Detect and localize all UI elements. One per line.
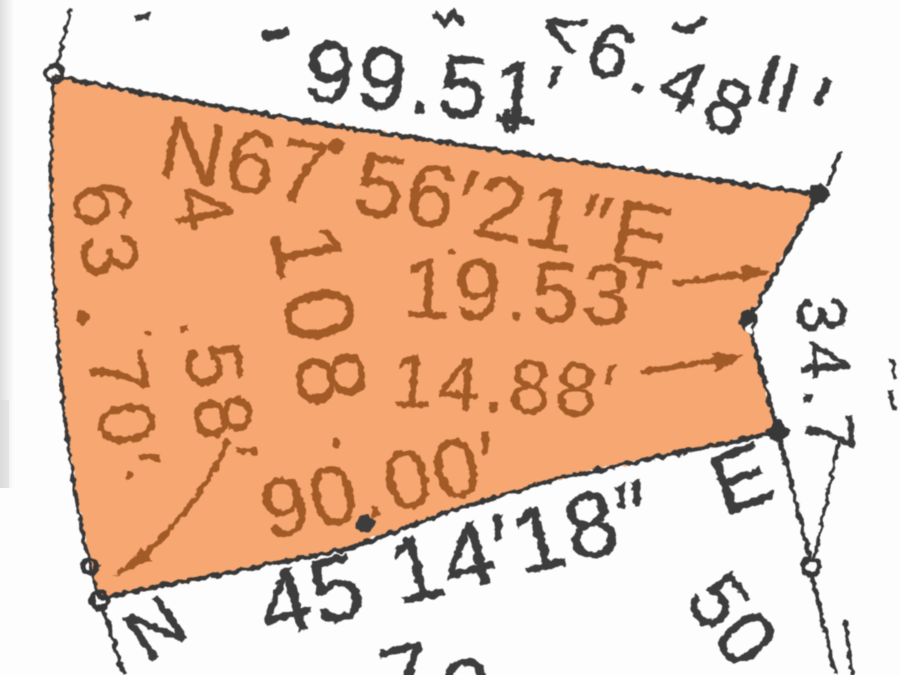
- svg-text:19.53′: 19.53′: [401, 240, 654, 345]
- svg-text:34.7: 34.7: [782, 293, 869, 462]
- svg-text:14.88′: 14.88′: [389, 338, 622, 435]
- svg-text:63: 63: [54, 175, 158, 291]
